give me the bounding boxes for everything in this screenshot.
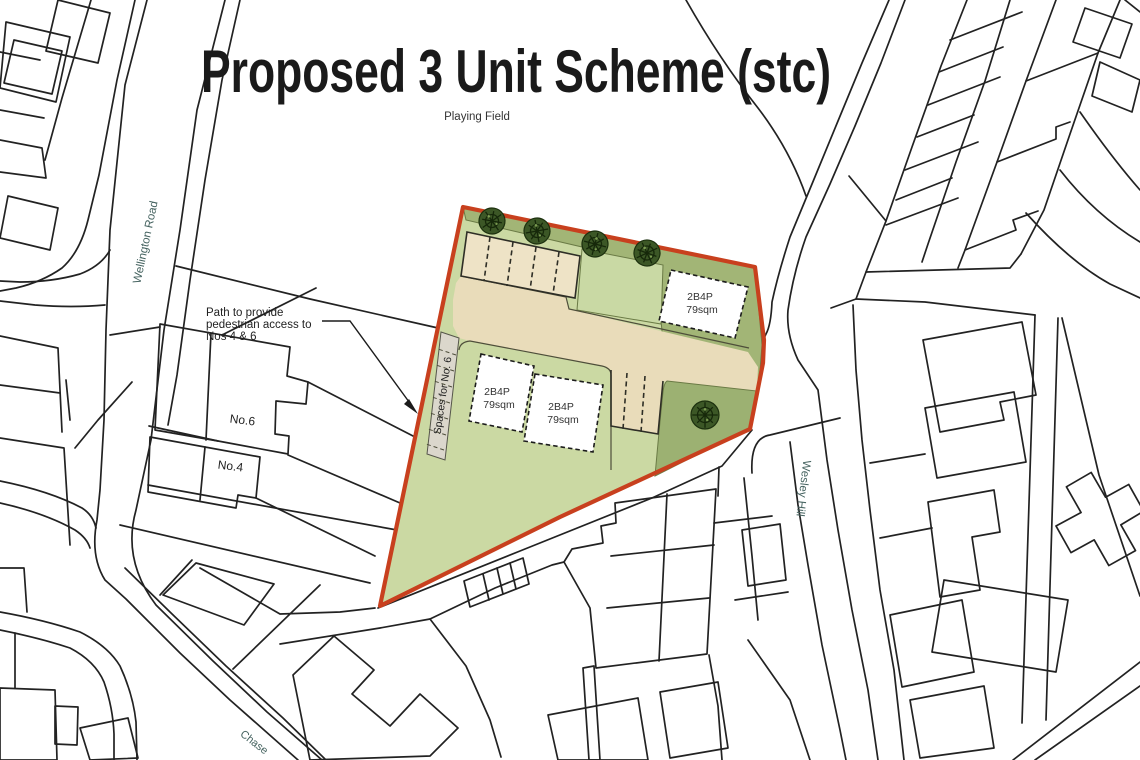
svg-text:2B4P: 2B4P xyxy=(687,291,713,303)
svg-text:79sqm: 79sqm xyxy=(483,399,515,411)
svg-text:pedestrian access to: pedestrian access to xyxy=(206,319,311,331)
svg-text:Path to provide: Path to provide xyxy=(206,307,283,319)
svg-text:Nos 4 & 6: Nos 4 & 6 xyxy=(206,331,257,343)
svg-text:79sqm: 79sqm xyxy=(686,304,718,316)
svg-text:79sqm: 79sqm xyxy=(547,414,579,426)
svg-text:2B4P: 2B4P xyxy=(548,401,574,413)
svg-text:Proposed 3 Unit Scheme (stc): Proposed 3 Unit Scheme (stc) xyxy=(201,38,831,105)
svg-text:2B4P: 2B4P xyxy=(484,386,510,398)
svg-text:Playing Field: Playing Field xyxy=(444,111,510,123)
